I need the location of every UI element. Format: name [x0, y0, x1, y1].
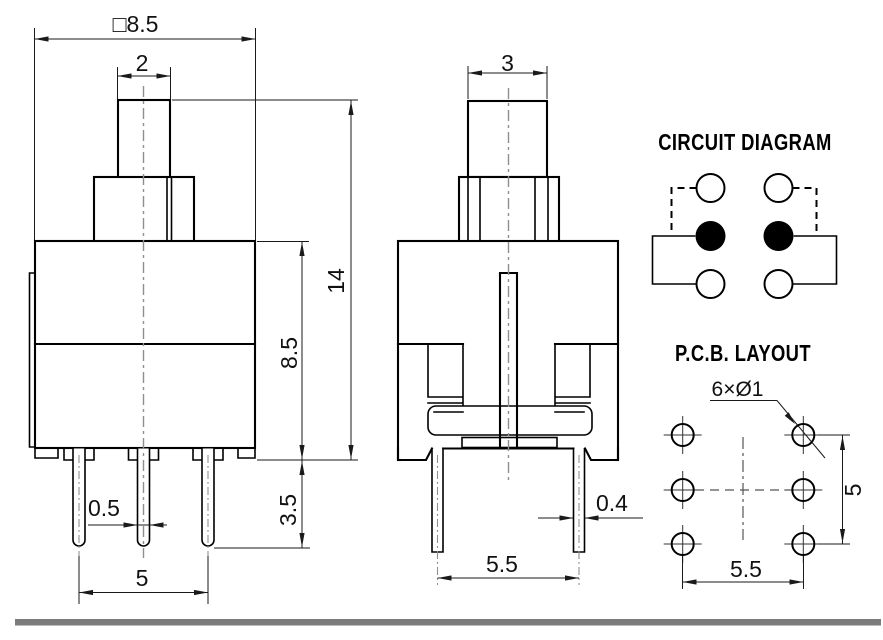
dim-label-side-pin-spacing: 5.5 — [486, 551, 518, 577]
pcb-callout-leader-line — [710, 401, 825, 459]
circuit-dashed-link-right — [793, 188, 817, 235]
circuit-solid-link-left — [653, 236, 696, 284]
dim-label-side-plunger-width: 3 — [501, 50, 514, 76]
pcb-callout-arrow — [785, 412, 795, 424]
side-base-plate — [462, 438, 557, 448]
dim-side-pin-spacing: 5.5 — [438, 551, 580, 581]
pcb-layout: P.C.B. LAYOUT 6×Ø1 5 5.5 — [664, 341, 866, 589]
drawing-canvas: □8.5 2 8.5 14 3.5 — [0, 0, 883, 640]
dim-label-pin-width: 0.5 — [88, 495, 120, 521]
circuit-common-terminal-left — [696, 221, 726, 251]
circuit-dashed-link-left — [672, 188, 697, 235]
pcb-hole-callout-label: 6×Ø1 — [712, 378, 764, 401]
dim-pcb-horizontal-pitch: 5.5 — [683, 556, 804, 589]
dim-label-pin-thickness: 0.4 — [596, 490, 628, 516]
circuit-terminal-top-right — [765, 174, 793, 202]
circuit-diagram-title: CIRCUIT DIAGRAM — [658, 130, 832, 155]
circuit-terminal-top-left — [697, 174, 725, 202]
circuit-terminal-bottom-right — [765, 270, 793, 298]
dim-label-pin-length: 3.5 — [275, 494, 301, 526]
dim-label-plunger-width: 2 — [136, 50, 149, 76]
dim-front-body-height: 8.5 — [257, 242, 309, 460]
dim-label-body-width: □8.5 — [113, 11, 159, 37]
dim-front-pin-length: 3.5 — [214, 461, 310, 549]
circuit-common-terminal-right — [764, 221, 794, 251]
front-collar — [94, 177, 194, 242]
pcb-layout-title: P.C.B. LAYOUT — [675, 341, 811, 366]
dim-front-pin-width: 0.5 — [88, 495, 167, 528]
front-view: □8.5 2 8.5 14 3.5 — [30, 11, 359, 604]
side-view: 3 0.4 5.5 — [398, 50, 643, 585]
dim-side-pin-thickness: 0.4 — [538, 490, 643, 521]
circuit-diagram: CIRCUIT DIAGRAM — [653, 130, 837, 298]
technical-drawing-page: □8.5 2 8.5 14 3.5 — [0, 0, 883, 640]
dim-front-pin-spacing: 5 — [79, 556, 208, 604]
dim-label-body-height: 8.5 — [276, 337, 302, 369]
circuit-terminal-bottom-left — [697, 270, 725, 298]
dim-side-plunger-width: 3 — [468, 50, 547, 99]
side-spring-housing — [428, 406, 592, 435]
dim-label-pcb-vertical-pitch: 5 — [840, 484, 866, 497]
circuit-solid-link-right — [794, 236, 837, 284]
bottom-separator-bar — [15, 619, 881, 626]
side-plunger — [468, 101, 547, 177]
dim-pcb-vertical-pitch: 5 — [818, 435, 866, 544]
dim-label-pin-spacing: 5 — [136, 565, 149, 591]
dim-label-total-height: 14 — [323, 268, 349, 294]
dim-label-pcb-horizontal-pitch: 5.5 — [730, 556, 762, 582]
